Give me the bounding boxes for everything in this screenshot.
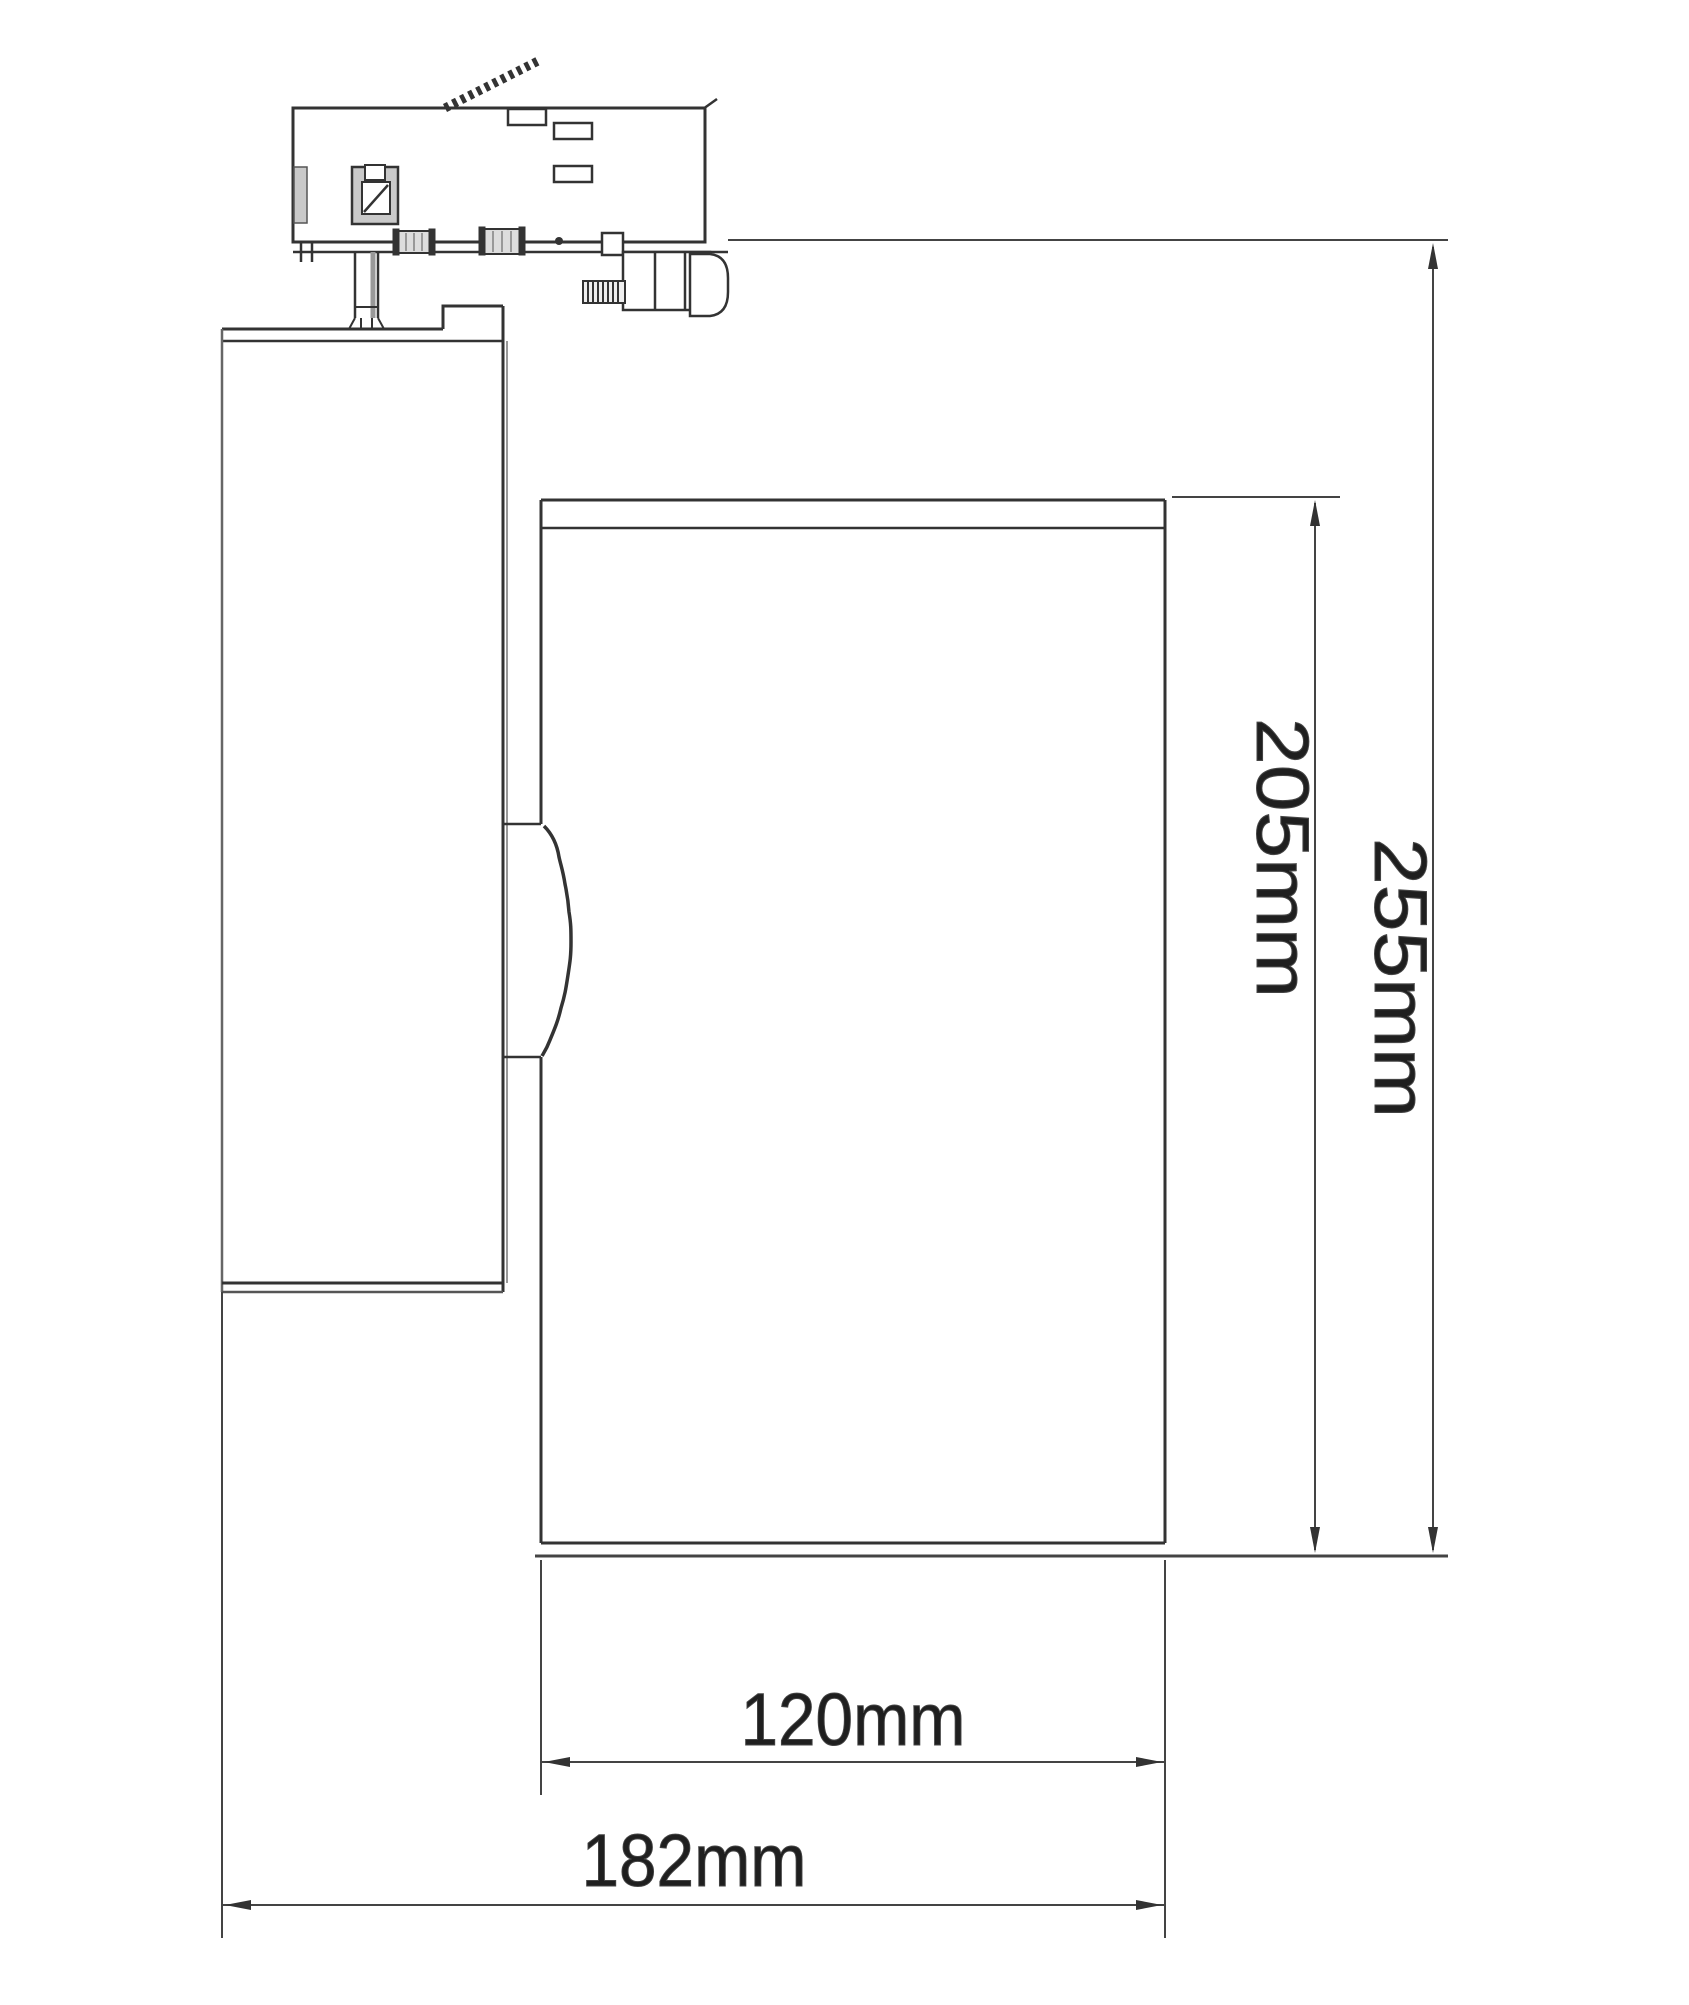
track-adapter xyxy=(293,60,728,316)
dim-head-height: 205mm xyxy=(1172,497,1340,1553)
arrow-right xyxy=(1136,1900,1162,1910)
housing-step xyxy=(443,306,503,329)
arrow-up xyxy=(1428,243,1438,269)
latch-cap xyxy=(690,254,728,316)
label-205mm: 205mm xyxy=(1241,718,1324,998)
arrow-down xyxy=(1428,1527,1438,1553)
rail-contact-1 xyxy=(393,229,435,255)
rail-contact-2 xyxy=(479,227,525,255)
corner-tick xyxy=(703,99,717,109)
dim-overall-length: 182mm xyxy=(222,1292,1165,1938)
contact-hook xyxy=(352,165,398,224)
lamp-head xyxy=(535,500,1448,1556)
knurled-knob xyxy=(583,281,625,303)
adapter-slot-top xyxy=(508,109,546,125)
arrow-left xyxy=(225,1900,251,1910)
arrow-down xyxy=(1310,1527,1320,1553)
stem xyxy=(349,252,384,329)
rail-dot xyxy=(555,237,563,245)
track-spotlight-dimension-drawing: 255mm 205mm 120mm 182mm xyxy=(0,0,1689,2000)
dim-overall-height: 255mm xyxy=(728,240,1448,1553)
dimension-drawing-page: 255mm 205mm 120mm 182mm xyxy=(0,0,1689,2000)
adapter-slot-a xyxy=(554,123,592,139)
hinge-knuckle-arc xyxy=(542,826,571,1056)
arrow-right xyxy=(1136,1757,1162,1767)
hinge xyxy=(503,824,571,1057)
adapter-left-shade xyxy=(294,167,307,223)
adapter-slot-b xyxy=(554,166,592,182)
driver-housing xyxy=(222,306,507,1292)
label-255mm: 255mm xyxy=(1359,838,1442,1118)
label-120mm: 120mm xyxy=(741,1678,966,1761)
latch-assembly xyxy=(583,233,728,316)
arrow-left xyxy=(544,1757,570,1767)
label-182mm: 182mm xyxy=(582,1819,807,1902)
arrow-up xyxy=(1310,500,1320,526)
locking-lever xyxy=(445,60,540,108)
